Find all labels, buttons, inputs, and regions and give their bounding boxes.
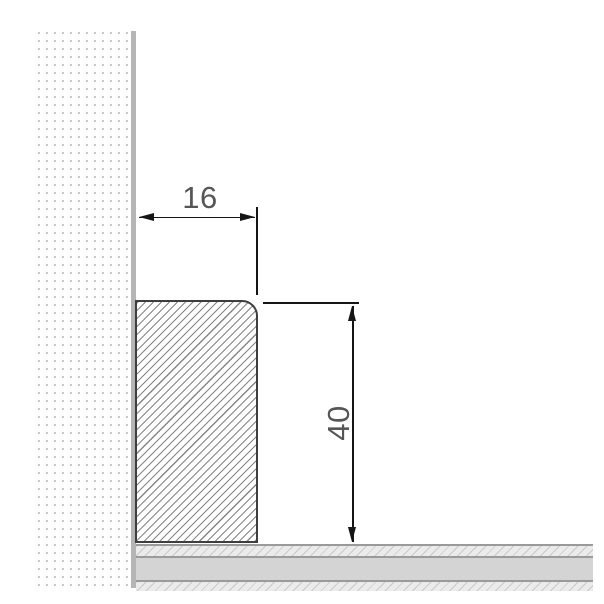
floor-top-layer (136, 544, 593, 558)
width-dimension-line (139, 217, 255, 219)
floor-section (136, 544, 593, 591)
skirting-board-profile (135, 300, 258, 543)
width-extension-line (256, 207, 258, 295)
technical-drawing-canvas: 16 40 (0, 0, 604, 604)
wall-section (37, 31, 131, 588)
floor-bottom-layer (136, 580, 593, 591)
height-dim-arrow-down-icon (348, 527, 356, 542)
height-dim-arrow-up-icon (348, 306, 356, 321)
floor-core-layer (136, 558, 593, 580)
width-dim-arrow-right-icon (240, 213, 255, 221)
height-dimension-label: 40 (307, 392, 369, 454)
width-dimension-label: 16 (167, 182, 233, 213)
width-dim-arrow-left-icon (139, 213, 154, 221)
height-extension-line (263, 302, 359, 304)
